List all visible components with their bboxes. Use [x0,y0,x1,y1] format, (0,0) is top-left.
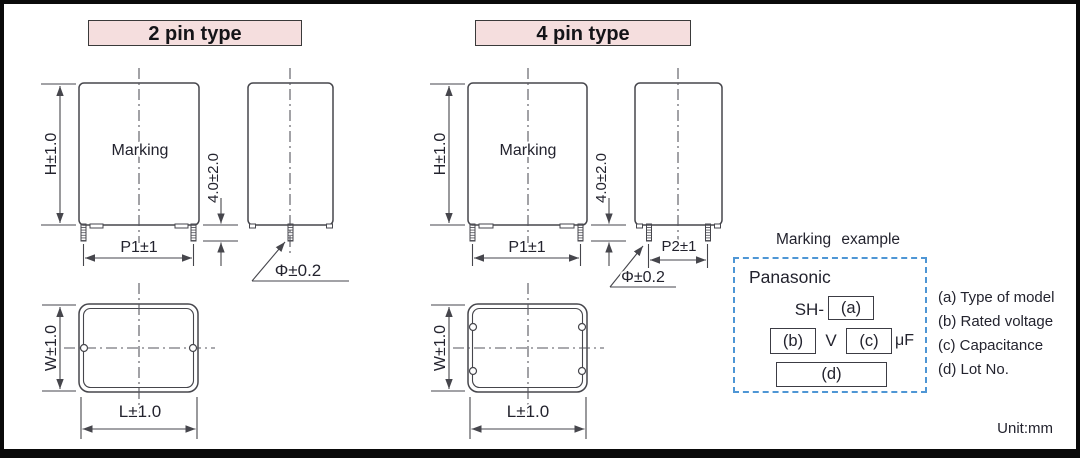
pin-position [81,345,88,352]
marking-field-a: (a) [828,296,874,320]
lead-pin [191,224,196,241]
marking-example-box: Panasonic SH- (a) (b) V (c) μF (d) [733,257,927,393]
lead-diameter-label: Φ±0.2 [621,269,665,286]
section-header-2pin: 2 pin type [88,20,302,46]
pitch1-label: P1±1 [120,239,157,256]
width-dimension-label: W±1.0 [432,325,449,371]
pin-position [579,324,586,331]
2pin-lead-length-dimension: 4.0±2.0 [203,153,238,266]
2pin-lead-diameter-callout: Φ±0.2 [252,242,349,281]
standoff-foot [560,224,574,228]
2pin-length-dimension: L±1.0 [81,397,197,439]
standoff-foot [637,224,643,228]
legend-item-a: (a) Type of model [938,288,1054,312]
standoff-foot [715,224,721,228]
capacitor-dimension-diagram: 2 pin type 4 pin type Marking H±1.0 [0,0,1080,458]
legend-item-b: (b) Rated voltage [938,312,1054,336]
standoff-foot [479,224,493,228]
brand-label: Panasonic [749,267,831,288]
capacitance-unit-label: μF [895,332,925,350]
pitch1-label: P1±1 [508,239,545,256]
legend-item-d: (d) Lot No. [938,360,1054,384]
length-dimension-label: L±1.0 [507,402,549,421]
standoff-foot [327,224,333,228]
2pin-pitch1-dimension: P1±1 [84,239,194,266]
4pin-length-dimension: L±1.0 [470,397,586,439]
marking-example-title: Marking example [733,231,943,249]
marking-label: Marking [500,142,557,159]
lead-pin [288,224,293,241]
lead-pin [470,224,475,241]
marking-field-b: (b) [770,328,816,354]
voltage-unit-label: V [822,331,840,351]
height-dimension-label: H±1.0 [43,133,60,176]
4pin-top-view [453,283,604,413]
2pin-height-dimension: H±1.0 [41,84,76,225]
length-dimension-label: L±1.0 [119,402,161,421]
lead-pin [706,224,711,241]
pitch2-label: P2±1 [662,238,697,255]
height-dimension-label: H±1.0 [432,133,449,176]
standoff-foot [175,224,188,228]
marking-label: Marking [112,142,169,159]
4pin-lead-length-dimension: 4.0±2.0 [591,153,626,266]
2pin-top-view [64,283,215,413]
4pin-front-view: Marking [468,68,587,243]
unit-label: Unit:mm [975,420,1053,437]
centerline [453,283,604,413]
marking-field-c: (c) [846,328,892,354]
marking-legend: (a) Type of model (b) Rated voltage (c) … [938,288,1054,384]
pin-position [470,368,477,375]
pin-position [470,324,477,331]
section-header-4pin: 4 pin type [475,20,691,46]
4pin-pitch1-dimension: P1±1 [473,239,581,266]
lead-pin [81,224,86,241]
width-dimension-label: W±1.0 [43,325,60,371]
2pin-front-view: Marking [79,68,199,243]
pin-position [579,368,586,375]
4pin-pitch2-dimension: P2±1 [649,238,708,268]
standoff-foot [90,224,103,228]
legend-item-c: (c) Capacitance [938,336,1054,360]
4pin-height-dimension: H±1.0 [430,84,465,225]
marking-field-d: (d) [776,362,887,387]
lead-length-label: 4.0±2.0 [593,153,610,203]
standoff-foot [250,224,256,228]
pin-position [190,345,197,352]
lead-length-label: 4.0±2.0 [205,153,222,203]
4pin-side-view [635,68,722,243]
lead-pin [647,224,652,241]
lead-diameter-label: Φ±0.2 [275,261,322,280]
2pin-side-view [248,68,333,254]
model-prefix-label: SH- [754,300,824,320]
lead-pin [578,224,583,241]
